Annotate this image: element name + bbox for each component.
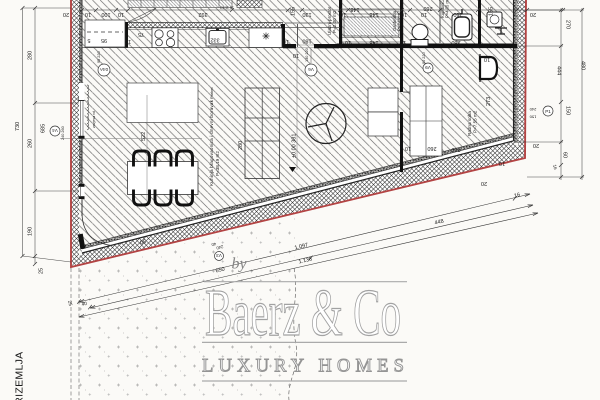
svg-text:5: 5 <box>87 37 90 43</box>
svg-text:P=2.00 m2: P=2.00 m2 <box>332 10 337 33</box>
svg-text:20: 20 <box>63 11 69 17</box>
svg-text:04A: 04A <box>99 67 108 72</box>
svg-text:148: 148 <box>369 11 378 17</box>
svg-text:10: 10 <box>293 52 299 58</box>
svg-text:150: 150 <box>565 106 571 115</box>
svg-text:100: 100 <box>101 11 110 17</box>
svg-text:392: 392 <box>198 11 207 17</box>
svg-text:Kuhinja blagovaonica i dnevni: Kuhinja blagovaonica i dnevni boravak <box>209 99 214 186</box>
svg-text:10: 10 <box>345 39 351 45</box>
svg-text:20: 20 <box>533 142 539 148</box>
svg-text:10: 10 <box>125 38 131 44</box>
svg-text:10: 10 <box>85 11 91 17</box>
svg-text:95 220: 95 220 <box>97 51 101 63</box>
svg-text:260: 260 <box>423 5 432 11</box>
svg-text:V4: V4 <box>52 128 58 133</box>
svg-text:148: 148 <box>369 39 378 45</box>
svg-text:260: 260 <box>28 139 34 148</box>
svg-text:10: 10 <box>401 11 407 17</box>
svg-text:95: 95 <box>101 37 107 43</box>
svg-text:10: 10 <box>405 145 411 151</box>
svg-text:270: 270 <box>565 20 571 29</box>
svg-text:10: 10 <box>499 160 505 166</box>
svg-text:444: 444 <box>556 66 562 75</box>
svg-text:155: 155 <box>489 7 495 16</box>
svg-text:332: 332 <box>210 37 219 43</box>
svg-text:P=4.05 m2: P=4.05 m2 <box>445 0 450 18</box>
svg-text:10: 10 <box>484 56 490 62</box>
svg-text:V6: V6 <box>308 67 314 72</box>
svg-text:155: 155 <box>291 7 297 16</box>
svg-text:20: 20 <box>530 11 536 17</box>
svg-text:±0.00 381: ±0.00 381 <box>292 134 298 158</box>
svg-text:Parket: Parket <box>209 87 214 99</box>
svg-text:280: 280 <box>28 51 34 60</box>
svg-text:20: 20 <box>481 180 487 186</box>
svg-text:130: 130 <box>302 11 311 17</box>
svg-text:730: 730 <box>15 122 21 131</box>
svg-text:685: 685 <box>41 124 47 133</box>
svg-text:522: 522 <box>141 132 147 141</box>
svg-text:75: 75 <box>138 31 144 37</box>
svg-text:240 260: 240 260 <box>61 126 65 140</box>
svg-text:10: 10 <box>340 11 346 17</box>
svg-text:260: 260 <box>453 11 462 17</box>
svg-text:10: 10 <box>118 11 124 17</box>
svg-text:10: 10 <box>400 39 406 45</box>
svg-text:by: by <box>231 256 247 273</box>
svg-text:Baerz & Co: Baerz & Co <box>205 276 401 351</box>
svg-text:150: 150 <box>529 115 536 120</box>
svg-text:P=2.19 m2: P=2.19 m2 <box>397 10 402 31</box>
svg-text:148: 148 <box>350 6 359 12</box>
svg-text:260: 260 <box>427 145 436 151</box>
svg-text:LUXURY HOMES: LUXURY HOMES <box>202 357 409 377</box>
svg-text:280: 280 <box>238 141 244 150</box>
svg-text:273: 273 <box>486 97 492 106</box>
svg-text:PRIZEMLJA: PRIZEMLJA <box>14 352 26 400</box>
svg-text:260: 260 <box>451 39 460 45</box>
svg-text:P=7.55 m2: P=7.55 m2 <box>473 110 478 133</box>
svg-text:60: 60 <box>562 152 568 158</box>
svg-text:130 220: 130 220 <box>305 48 309 62</box>
svg-text:16 11 63: 16 11 63 <box>220 6 234 10</box>
svg-text:190: 190 <box>28 227 34 236</box>
svg-text:25: 25 <box>39 268 45 274</box>
svg-text:zavjesa rol.: zavjesa rol. <box>92 110 96 128</box>
svg-text:10: 10 <box>283 38 289 44</box>
svg-text:P1: P1 <box>545 109 551 114</box>
svg-text:180: 180 <box>302 38 311 44</box>
svg-text:260: 260 <box>451 146 460 152</box>
svg-text:V3: V3 <box>216 253 222 258</box>
svg-text:90 220: 90 220 <box>422 52 426 64</box>
svg-text:480: 480 <box>580 61 586 70</box>
svg-text:V9: V9 <box>425 65 431 70</box>
svg-text:Radna soba: Radna soba <box>467 111 472 136</box>
svg-text:P=38.19 m2: P=38.19 m2 <box>215 151 220 176</box>
svg-text:240: 240 <box>529 107 536 112</box>
